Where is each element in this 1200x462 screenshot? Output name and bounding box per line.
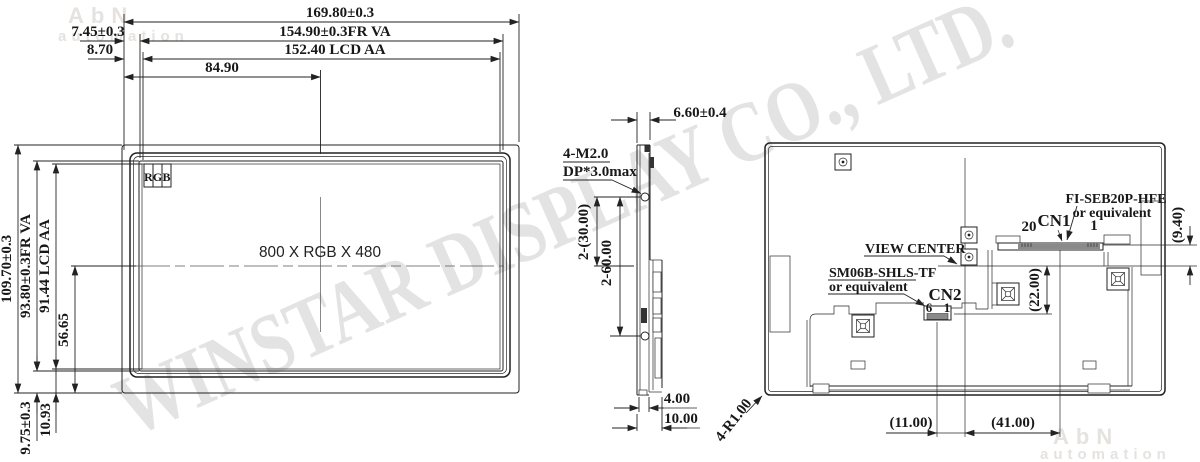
- dim-aa-width: 152.40 LCD AA: [284, 42, 385, 58]
- mounting-boss-right: [1107, 268, 1129, 290]
- cn1-connector: [996, 235, 1130, 250]
- screw-note-line2: DP*3.0max: [563, 164, 637, 180]
- pad-left: [851, 361, 865, 369]
- rgb-pixel-legend: R G B: [144, 164, 171, 187]
- pixel-b-label: B: [162, 170, 170, 184]
- cn1-part-note-2: or equivalent: [1073, 206, 1152, 221]
- tape-hatch-left: [770, 256, 790, 332]
- pad-right: [1083, 361, 1096, 369]
- dim-overall-width: 169.80±0.3: [306, 5, 374, 21]
- bottom-tab-right: [1088, 384, 1110, 393]
- cn2-pin6-label: 6: [926, 300, 933, 315]
- brand-mark-bottom-right: AbN automation: [1040, 424, 1171, 462]
- dim-cn1-x-offset: (41.00): [991, 415, 1035, 431]
- dim-aa-offset-left: 8.70: [87, 42, 113, 58]
- view-center-label: VIEW CENTER: [865, 242, 966, 257]
- resolution-label: 800 X RGB X 480: [259, 244, 381, 261]
- dim-va-width: 154.90±0.3FR VA: [279, 24, 391, 40]
- dim-screw-pitch: 2-60.00: [599, 240, 615, 286]
- dim-screw-center-offset: 2-(30.00): [576, 204, 592, 260]
- cn1-part-note: FI-SEB20P-HFE: [1065, 192, 1166, 207]
- screw-hole-top: [641, 193, 649, 201]
- dim-center-offset-x: 84.90: [205, 60, 239, 76]
- dim-total-depth: 10.00: [664, 411, 698, 427]
- mounting-boss-mid: [997, 283, 1019, 305]
- dim-cn2-x-offset: (11.00): [890, 415, 933, 431]
- back-view: CN1 20 1 FI-SEB20P-HFE or equivalent VIE…: [712, 143, 1197, 445]
- dim-bottom-margin-aa: 10.93: [38, 403, 54, 437]
- dim-cn1-y-offset: (9.40): [1170, 207, 1186, 243]
- lcd-module-drawing: WINSTAR DISPLAY CO., LTD. AbN automation…: [0, 0, 1200, 462]
- dim-bottom-margin-va: 9.75±0.3: [18, 401, 34, 454]
- dim-pcb-depth: 4.00: [664, 391, 690, 407]
- screw-hole-bottom: [641, 332, 649, 340]
- cn2-part-note: SM06B-SHLS-TF: [829, 266, 936, 281]
- brand-sub-text: automation: [1040, 446, 1171, 462]
- screw-boss-center-1: [961, 227, 977, 243]
- bottom-tab-left: [813, 384, 829, 393]
- pixel-g-label: G: [153, 170, 162, 184]
- pixel-r-label: R: [144, 170, 153, 184]
- screw-boss-top: [835, 154, 851, 170]
- cn1-label: CN1: [1037, 211, 1070, 230]
- dim-va-height: 93.80±0.3FR VA: [18, 214, 34, 318]
- dim-aa-height: 91.44 LCD AA: [37, 219, 53, 313]
- screw-note-line1: 4-M2.0: [563, 146, 608, 162]
- cn2-pin1-label: 1: [944, 300, 951, 315]
- cn1-pin20-label: 20: [1022, 219, 1037, 235]
- mounting-boss-left: [852, 315, 874, 337]
- dim-cn2-y-offset: (22.00): [1027, 268, 1043, 312]
- corner-radius-note: 4-R1.00: [712, 396, 755, 445]
- dim-bezel-offset-left: 7.45±0.3: [71, 24, 124, 40]
- dim-overall-height: 109.70±0.3: [0, 235, 15, 303]
- dim-thickness: 6.60±0.4: [673, 105, 727, 121]
- cn2-part-note-2: or equivalent: [829, 280, 908, 295]
- dim-center-offset-y: 56.65: [56, 313, 72, 347]
